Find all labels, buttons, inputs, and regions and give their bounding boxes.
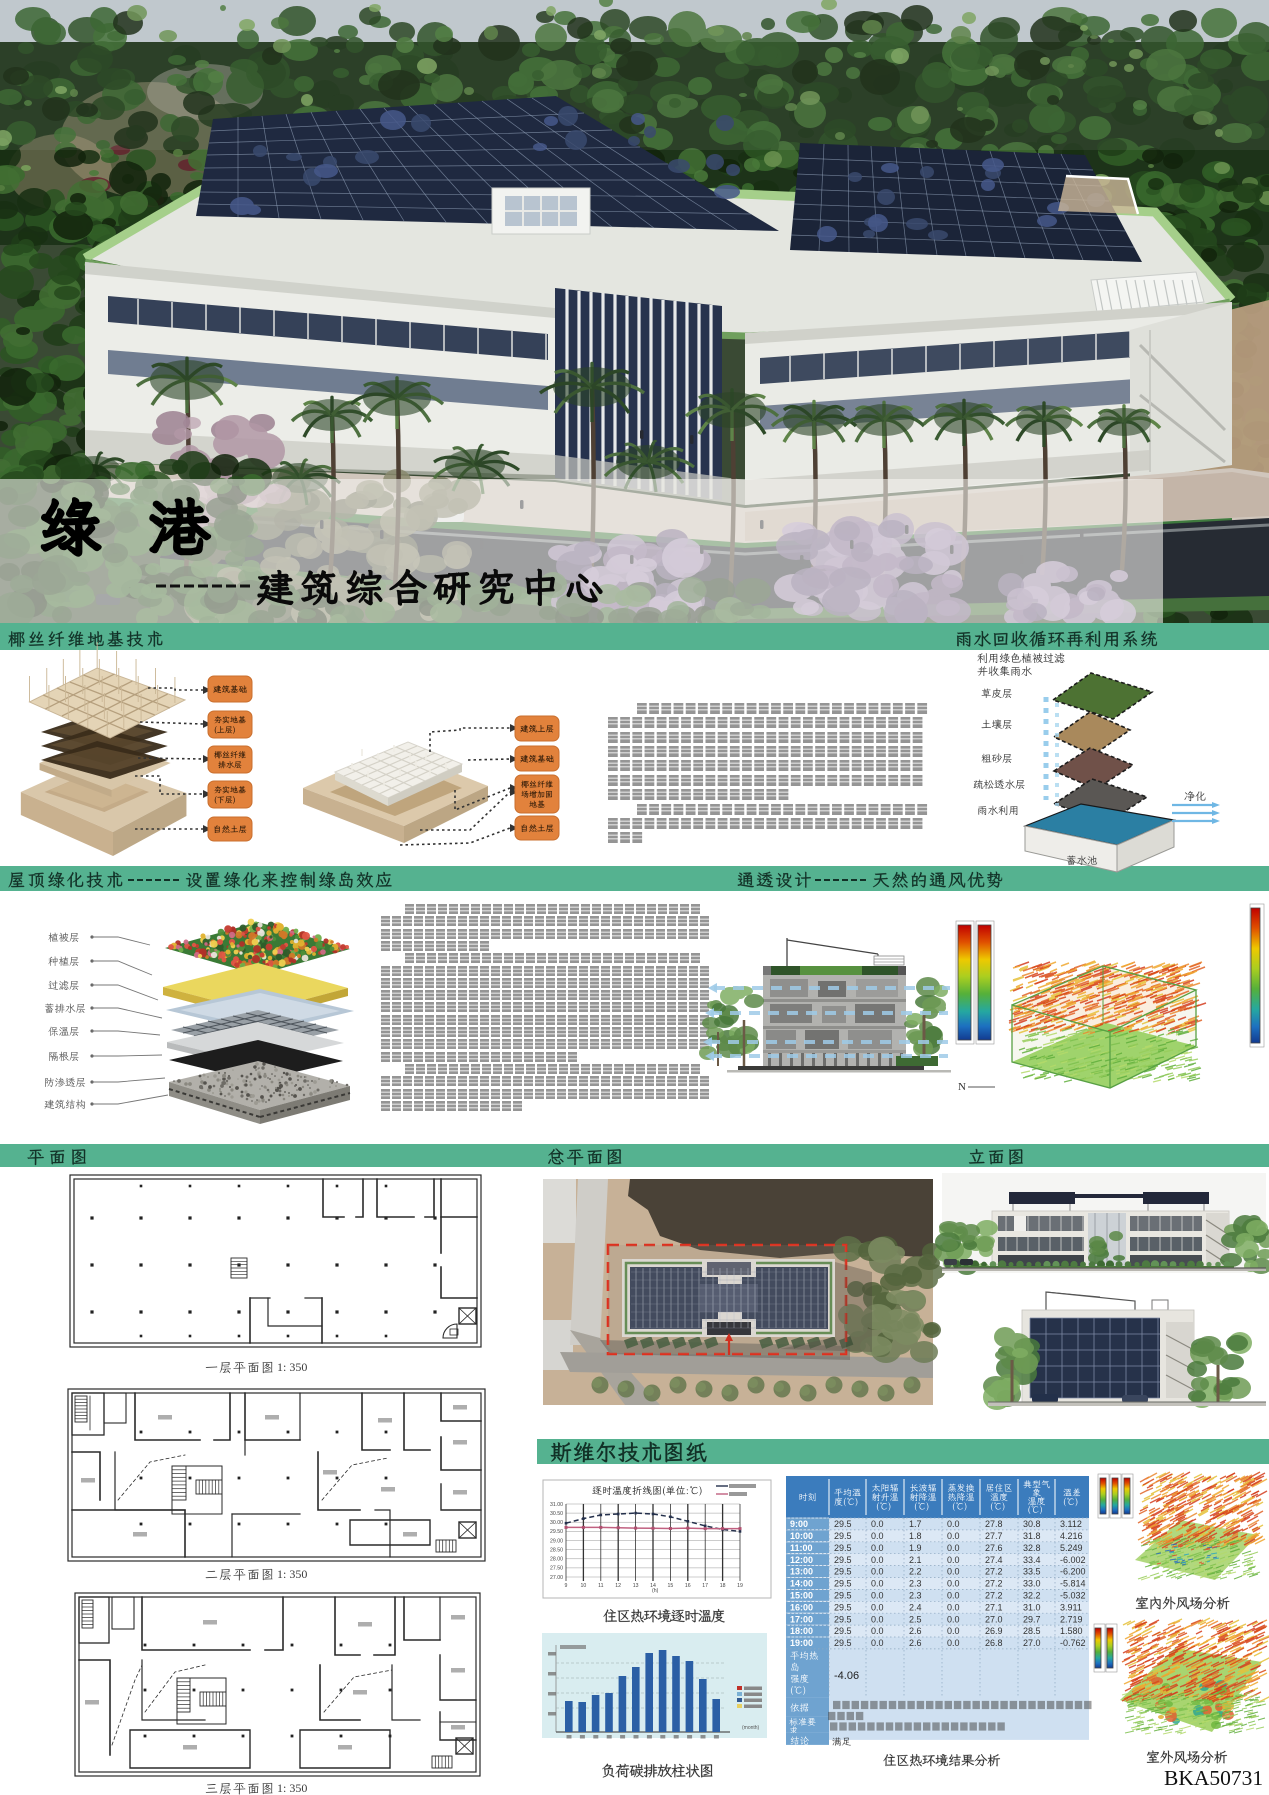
svg-text:11:00: 11:00 <box>790 1543 813 1553</box>
svg-text:(h): (h) <box>652 1588 659 1594</box>
svg-text:0.0: 0.0 <box>871 1519 884 1529</box>
svg-text:0.0: 0.0 <box>871 1591 884 1601</box>
svg-text:27.0: 27.0 <box>985 1614 1003 1624</box>
svg-text:N: N <box>958 1081 966 1093</box>
svg-text:3.112: 3.112 <box>1060 1519 1082 1529</box>
svg-text:30.50: 30.50 <box>550 1511 563 1517</box>
svg-text:27.6: 27.6 <box>985 1543 1003 1553</box>
svg-text:29.5: 29.5 <box>834 1626 852 1636</box>
svg-text:0.0: 0.0 <box>871 1614 884 1624</box>
svg-text:19: 19 <box>737 1583 743 1589</box>
svg-text:27.2: 27.2 <box>985 1591 1003 1601</box>
svg-text:0.0: 0.0 <box>871 1579 884 1589</box>
svg-text:29.5: 29.5 <box>834 1531 852 1541</box>
svg-text:-0.762: -0.762 <box>1060 1638 1086 1648</box>
svg-text:29.50: 29.50 <box>550 1529 563 1535</box>
svg-text:10: 10 <box>581 1583 587 1589</box>
svg-text:33.5: 33.5 <box>1023 1567 1041 1577</box>
svg-text:27.2: 27.2 <box>985 1579 1003 1589</box>
svg-text:-4.06: -4.06 <box>834 1670 859 1682</box>
svg-text:27.50: 27.50 <box>550 1566 563 1572</box>
svg-text:18: 18 <box>720 1583 726 1589</box>
svg-text:1.7: 1.7 <box>909 1519 922 1529</box>
svg-text:29.5: 29.5 <box>834 1567 852 1577</box>
svg-text:31.0: 31.0 <box>1023 1602 1041 1612</box>
svg-text:0.0: 0.0 <box>947 1579 960 1589</box>
svg-text:28.5: 28.5 <box>1023 1626 1041 1636</box>
svg-text:27.4: 27.4 <box>985 1555 1003 1565</box>
svg-text:17: 17 <box>702 1583 708 1589</box>
svg-text:2.2: 2.2 <box>909 1567 922 1577</box>
svg-text:33.0: 33.0 <box>1023 1579 1041 1589</box>
svg-text:14:00: 14:00 <box>790 1579 813 1589</box>
svg-text:29.5: 29.5 <box>834 1543 852 1553</box>
svg-text:28.50: 28.50 <box>550 1547 563 1553</box>
svg-text:2.719: 2.719 <box>1060 1614 1083 1624</box>
svg-text:17:00: 17:00 <box>790 1614 813 1624</box>
svg-text:0.0: 0.0 <box>871 1531 884 1541</box>
svg-text:32.2: 32.2 <box>1023 1591 1041 1601</box>
svg-text:3.911: 3.911 <box>1060 1602 1082 1612</box>
svg-text:0.0: 0.0 <box>947 1567 960 1577</box>
svg-text:BKA50731: BKA50731 <box>1164 1766 1263 1790</box>
svg-text:2.5: 2.5 <box>909 1614 922 1624</box>
svg-text:26.8: 26.8 <box>985 1638 1003 1648</box>
svg-text:27.8: 27.8 <box>985 1519 1003 1529</box>
svg-text:1.8: 1.8 <box>909 1531 922 1541</box>
svg-text:12: 12 <box>615 1583 621 1589</box>
svg-text:2.6: 2.6 <box>909 1626 922 1636</box>
svg-text:-5.032: -5.032 <box>1060 1591 1086 1601</box>
svg-text:29.7: 29.7 <box>1023 1614 1041 1624</box>
svg-text:2.3: 2.3 <box>909 1579 922 1589</box>
svg-text:19:00: 19:00 <box>790 1638 813 1648</box>
svg-text:10:00: 10:00 <box>790 1531 813 1541</box>
svg-text:0.0: 0.0 <box>947 1602 960 1612</box>
svg-text:29.5: 29.5 <box>834 1579 852 1589</box>
svg-text:-6.200: -6.200 <box>1060 1567 1086 1577</box>
svg-text:32.8: 32.8 <box>1023 1543 1041 1553</box>
svg-text:29.00: 29.00 <box>550 1538 563 1544</box>
svg-text:18:00: 18:00 <box>790 1626 813 1636</box>
svg-text:0.0: 0.0 <box>947 1591 960 1601</box>
svg-text:1: 350: 1: 350 <box>277 1567 307 1581</box>
svg-text:0.0: 0.0 <box>871 1602 884 1612</box>
svg-text:27.1: 27.1 <box>985 1602 1003 1612</box>
svg-text:0.0: 0.0 <box>947 1531 960 1541</box>
svg-text:1.580: 1.580 <box>1060 1626 1083 1636</box>
svg-text:27.7: 27.7 <box>985 1531 1003 1541</box>
svg-text:29.5: 29.5 <box>834 1602 852 1612</box>
svg-text:31.8: 31.8 <box>1023 1531 1041 1541</box>
svg-text:2.3: 2.3 <box>909 1591 922 1601</box>
svg-text:27.00: 27.00 <box>550 1575 563 1581</box>
svg-text:2.1: 2.1 <box>909 1555 922 1565</box>
svg-text:0.0: 0.0 <box>871 1567 884 1577</box>
svg-text:0.0: 0.0 <box>947 1626 960 1636</box>
svg-text:9: 9 <box>565 1583 568 1589</box>
svg-text:29.5: 29.5 <box>834 1555 852 1565</box>
svg-text:30.00: 30.00 <box>550 1520 563 1526</box>
svg-text:1.9: 1.9 <box>909 1543 922 1553</box>
svg-text:29.5: 29.5 <box>834 1638 852 1648</box>
svg-text:9:00: 9:00 <box>790 1519 808 1529</box>
svg-text:29.5: 29.5 <box>834 1614 852 1624</box>
svg-text:0.0: 0.0 <box>947 1543 960 1553</box>
svg-text:-6.002: -6.002 <box>1060 1555 1086 1565</box>
svg-text:2.4: 2.4 <box>909 1602 922 1612</box>
svg-text:29.5: 29.5 <box>834 1591 852 1601</box>
svg-text:0.0: 0.0 <box>947 1555 960 1565</box>
svg-text:0.0: 0.0 <box>947 1519 960 1529</box>
svg-text:2.6: 2.6 <box>909 1638 922 1648</box>
svg-text:16:00: 16:00 <box>790 1602 813 1612</box>
svg-text:31.00: 31.00 <box>550 1502 563 1508</box>
svg-text:0.0: 0.0 <box>947 1638 960 1648</box>
svg-text:4.216: 4.216 <box>1060 1531 1083 1541</box>
svg-text:(month): (month) <box>742 1725 760 1731</box>
svg-text:0.0: 0.0 <box>871 1543 884 1553</box>
svg-text:11: 11 <box>598 1583 603 1589</box>
svg-text:12:00: 12:00 <box>790 1555 813 1565</box>
svg-text:0.0: 0.0 <box>871 1555 884 1565</box>
svg-text:15: 15 <box>668 1583 674 1589</box>
svg-text:13:00: 13:00 <box>790 1567 813 1577</box>
svg-text:1: 350: 1: 350 <box>277 1360 307 1374</box>
svg-text:27.2: 27.2 <box>985 1567 1003 1577</box>
svg-text:0.0: 0.0 <box>947 1614 960 1624</box>
svg-text:26.9: 26.9 <box>985 1626 1003 1636</box>
svg-text:-5.814: -5.814 <box>1060 1579 1086 1589</box>
svg-text:16: 16 <box>685 1583 691 1589</box>
svg-text:15:00: 15:00 <box>790 1591 813 1601</box>
svg-text:13: 13 <box>633 1583 639 1589</box>
svg-text:1: 350: 1: 350 <box>277 1781 307 1795</box>
svg-text:5.249: 5.249 <box>1060 1543 1083 1553</box>
svg-text:30.8: 30.8 <box>1023 1519 1041 1529</box>
svg-text:0.0: 0.0 <box>871 1638 884 1648</box>
svg-text:0.0: 0.0 <box>871 1626 884 1636</box>
svg-text:33.4: 33.4 <box>1023 1555 1041 1565</box>
svg-text:27.0: 27.0 <box>1023 1638 1041 1648</box>
svg-text:28.00: 28.00 <box>550 1557 563 1563</box>
svg-text:29.5: 29.5 <box>834 1519 852 1529</box>
